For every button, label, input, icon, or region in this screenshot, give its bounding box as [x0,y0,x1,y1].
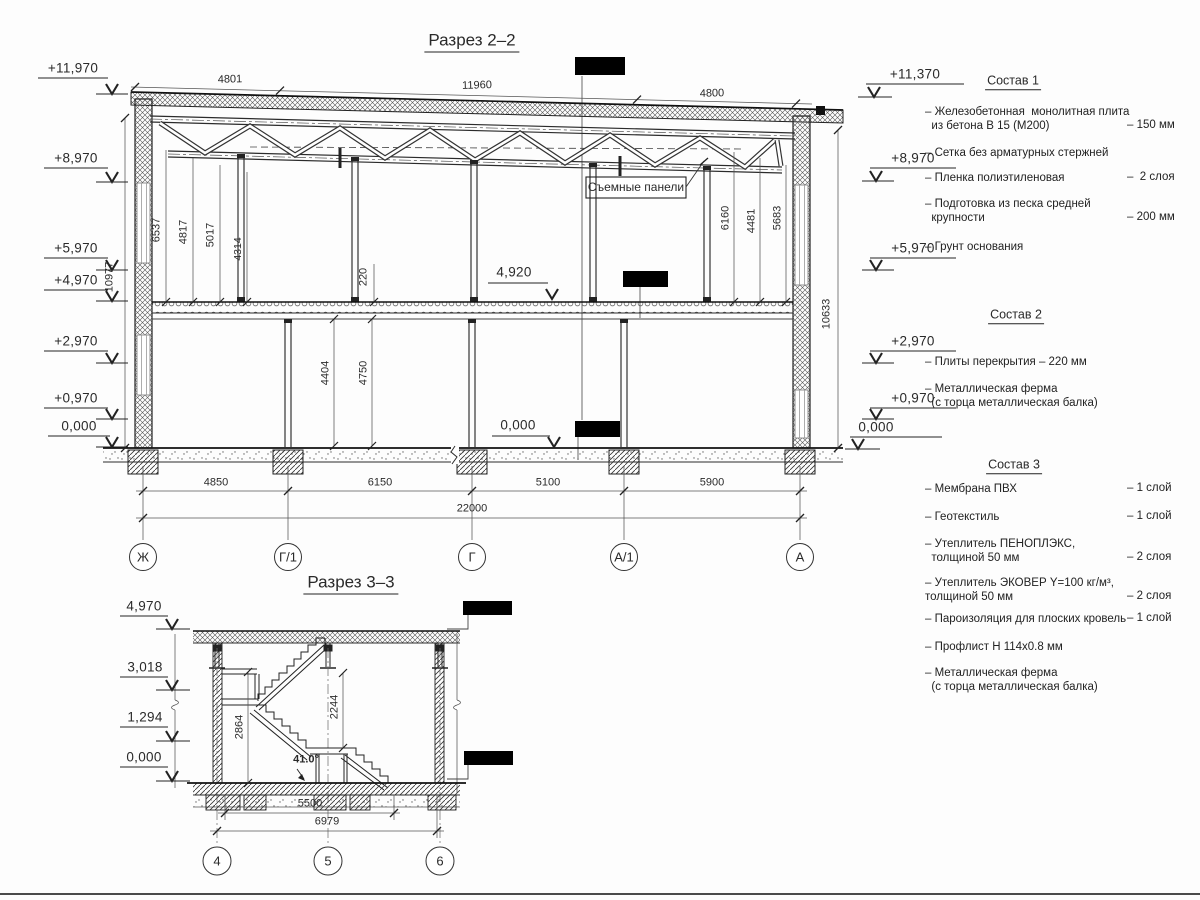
dim-top-3: 4800 [700,88,725,100]
note-item: – Геотекстиль [925,510,1130,524]
dim-top-1: 4801 [218,74,243,86]
note-item: – Железобетонная монолитная плита из бет… [925,105,1130,133]
redaction-box [575,57,625,75]
note-value: – 1 слой [1127,482,1172,494]
note-item: – Пароизоляция для плоских кровель [925,612,1130,626]
dim-bottom-1: 4850 [204,478,228,489]
dim-panel-1: 6537 [152,218,163,242]
s33-dim-stair-2: 2244 [330,695,341,719]
section22-structure [103,76,843,474]
redaction-box [623,271,668,287]
panel-label: Съемные панели [588,181,684,193]
note-item: – Плиты перекрытия – 220 мм [925,355,1130,369]
s33-dim-bottom-1: 5500 [298,799,322,810]
notes-title-1: Состав 1 [985,74,1041,90]
notes-title-2: Состав 2 [988,308,1044,324]
section22-title: Разрез 2–2 [424,32,519,53]
dim-slab-thickness: 220 [359,268,370,286]
dim-floor-2: 4750 [359,361,370,385]
elevation-left-7: 0,000 [61,419,96,433]
note-item: – Металлическая ферма (с торца металличе… [925,666,1130,694]
note-value: – 2 слоя [1127,590,1171,602]
note-item: – Пленка полиэтиленовая [925,171,1130,185]
dim-bottom-4: 5900 [700,478,724,489]
note-value: – 150 мм [1127,119,1175,131]
staircase [222,638,392,790]
dim-height-left: 10977 [105,262,116,293]
note-item: – Грунт основания [925,240,1130,254]
dim-panel-7: 5683 [773,206,784,230]
dim-bottom-2: 6150 [368,478,392,489]
axis-bubble-g1: Г/1 [279,551,297,564]
dim-height-right: 10633 [822,299,833,330]
dim-panel-3: 5017 [206,223,217,247]
note-value: – 1 слой [1127,510,1172,522]
axis-bubble-zh: Ж [137,551,149,564]
dim-panel-4: 4314 [233,237,244,260]
dim-bottom-3: 5100 [536,478,560,489]
note-item: – Подготовка из песка средней крупности [925,197,1130,225]
s33-elevation-2: 3,018 [127,660,162,674]
elevation-left-3: +5,970 [54,241,97,255]
elevation-left-5: +2,970 [54,334,97,348]
s33-stair-angle: 41.0° [293,755,319,766]
redaction-box [575,421,620,437]
s33-dim-stair-1: 2864 [235,715,246,739]
axis-bubble-g: Г [468,551,475,564]
axis-bubble-6: 6 [436,855,443,868]
dim-total: 22000 [457,504,488,515]
note-item: – Профлист Н 114х0.8 мм [925,640,1130,654]
dim-panel-6: 4481 [747,209,758,233]
note-item: – Мембрана ПВХ [925,482,1130,496]
elevation-right-4: +2,970 [891,334,934,348]
redaction-box [464,751,513,765]
elevation-left-1: +11,970 [48,61,98,75]
note-item: – Металлическая ферма (с торца металличе… [925,382,1130,410]
floor-elevation: 4,920 [496,265,531,279]
section33-title: Разрез 3–3 [303,574,398,595]
dim-top-2: 11960 [462,80,492,92]
note-value: – 1 слой [1127,612,1172,624]
axis-bubble-a1: А/1 [614,551,634,564]
elevation-left-4: +4,970 [54,273,97,287]
dim-panel-5: 6160 [721,206,732,230]
note-value: – 200 мм [1127,211,1175,223]
note-value: – 2 слоя [1127,551,1171,563]
s33-elevation-3: 1,294 [127,710,162,724]
redaction-box [463,601,512,615]
dim-panel-2: 4817 [179,220,190,244]
section33-structure [172,615,469,845]
axis-bubble-5: 5 [324,855,331,868]
ground-elevation: 0,000 [500,418,535,432]
s33-elevation-1: 4,970 [126,599,161,613]
s33-elevation-4: 0,000 [126,750,161,764]
elevation-right-6: 0,000 [858,420,893,434]
note-item: – Сетка без арматурных стержней [925,146,1130,160]
elevation-right-1: +11,370 [890,67,940,81]
drawing-linework [0,0,1200,900]
elevation-left-6: +0,970 [54,391,97,405]
note-value: – 2 слоя [1127,171,1175,183]
roof-truss [150,116,795,176]
elevation-left-2: +8,970 [54,151,97,165]
s33-dim-bottom-2: 6979 [315,817,339,828]
notes-title-3: Состав 3 [986,458,1042,474]
dim-floor-1: 4404 [321,361,332,385]
axis-bubble-a: А [796,551,805,564]
axis-bubble-4: 4 [213,855,220,868]
note-item: – Утеплитель ПЕНОПЛЭКС, толщиной 50 мм [925,537,1130,565]
note-item: – Утеплитель ЭКОВЕР Y=100 кг/м³, толщино… [925,576,1130,604]
drawing-sheet: Разрез 2–2 4801 11960 4800 +11,970 +8,97… [0,0,1200,900]
